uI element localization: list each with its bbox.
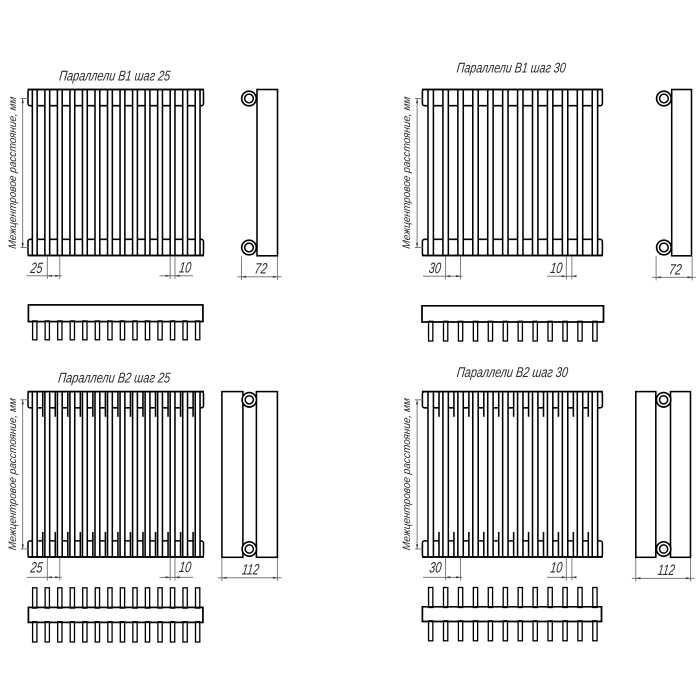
- svg-text:Межцентровое расстояние, мм: Межцентровое расстояние, мм: [7, 95, 19, 249]
- svg-text:Межцентровое расстояние, мм: Межцентровое расстояние, мм: [401, 397, 413, 551]
- svg-text:Межцентровое расстояние, мм: Межцентровое расстояние, мм: [401, 95, 413, 249]
- svg-text:112: 112: [657, 562, 677, 579]
- svg-text:112: 112: [241, 562, 261, 579]
- svg-text:Параллели В1 шаг 25: Параллели В1 шаг 25: [58, 68, 171, 84]
- svg-text:Параллели В1 шаг 30: Параллели В1 шаг 30: [456, 61, 567, 77]
- svg-text:25: 25: [29, 560, 44, 577]
- svg-text:72: 72: [668, 261, 683, 278]
- svg-text:25: 25: [29, 260, 44, 277]
- svg-text:Параллели В2 шаг 25: Параллели В2 шаг 25: [57, 371, 171, 387]
- svg-text:Межцентровое расстояние, мм: Межцентровое расстояние, мм: [7, 397, 19, 551]
- svg-text:72: 72: [254, 260, 269, 277]
- svg-text:Параллели В2 шаг 30: Параллели В2 шаг 30: [456, 365, 569, 381]
